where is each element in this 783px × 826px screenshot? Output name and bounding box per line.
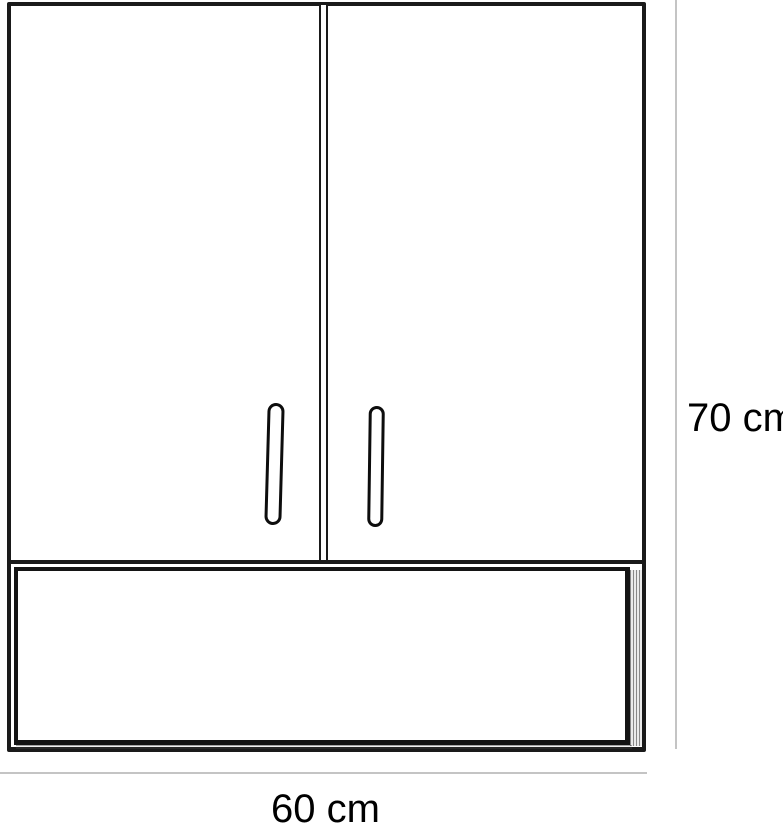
width-dimension-line: [0, 772, 647, 774]
right-door-handle-icon: [367, 406, 385, 527]
shelf-bottom-shading: [16, 745, 632, 749]
height-dimension-line: [675, 0, 677, 749]
shelf-side-shading: [630, 570, 642, 746]
right-door-panel: [339, 8, 657, 568]
left-door-handle-icon: [264, 403, 284, 525]
door-divider-line: [319, 5, 328, 562]
left-door-panel: [18, 8, 330, 568]
width-dimension-label: 60 cm: [271, 789, 380, 826]
height-dimension-label: 70 cm: [687, 398, 783, 438]
open-shelf-niche: [14, 567, 630, 745]
dimension-diagram-canvas: 70 cm 60 cm: [0, 0, 783, 826]
doors-bottom-edge: [7, 560, 646, 564]
